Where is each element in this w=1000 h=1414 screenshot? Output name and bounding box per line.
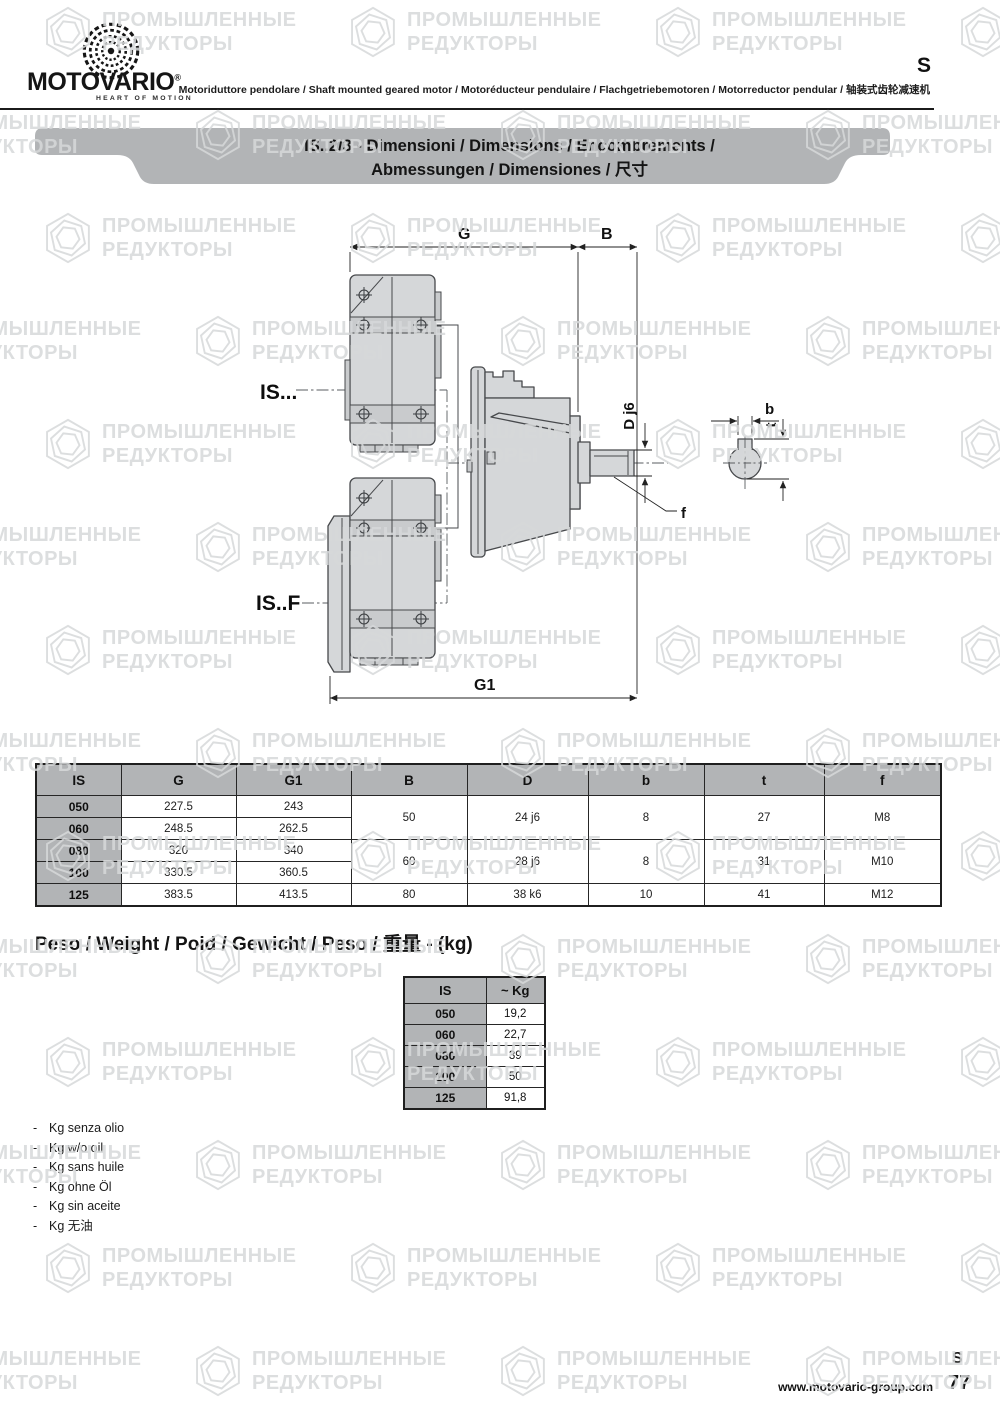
watermark: ПРОМЫШЛЕННЫЕРЕДУКТОРЫ bbox=[650, 4, 907, 60]
col-header-B: B bbox=[351, 764, 467, 796]
size-cell: 125 bbox=[404, 1088, 486, 1110]
watermark: ПРОМЫШЛЕННЫЕРЕДУКТОРЫ bbox=[800, 931, 1000, 987]
watermark: ПРОМЫШЛЕННЫЕРЕДУКТОРЫ bbox=[955, 4, 1000, 60]
dim-label-B: B bbox=[601, 226, 613, 243]
col-header-D: D bbox=[467, 764, 588, 796]
table-row: 125 383.5 413.5 80 38 k6 10 41 M12 bbox=[36, 884, 941, 907]
note-text: Kg 无油 bbox=[49, 1217, 93, 1237]
value-cell: 8 bbox=[588, 840, 704, 884]
title-banner: IS..2/3 - Dimensioni / Dimensions / Enco… bbox=[35, 128, 890, 188]
size-cell: 100 bbox=[404, 1067, 486, 1088]
size-cell: 125 bbox=[36, 884, 121, 907]
value-cell: 38 k6 bbox=[467, 884, 588, 907]
gearbox-top-view bbox=[345, 275, 441, 452]
table-row: 100 50 bbox=[404, 1067, 545, 1088]
value-cell: 22,7 bbox=[486, 1025, 545, 1046]
note-text: Kg senza olio bbox=[49, 1119, 124, 1139]
value-cell: 360.5 bbox=[236, 862, 351, 884]
col-header-b: b bbox=[588, 764, 704, 796]
watermark: ПРОМЫШЛЕННЫЕРЕДУКТОРЫ bbox=[345, 4, 602, 60]
dim-label-f: f bbox=[681, 505, 687, 522]
footer-page-number: 77 bbox=[948, 1372, 970, 1395]
dim-label-G: G bbox=[458, 226, 470, 243]
value-cell: 91,8 bbox=[486, 1088, 545, 1110]
note-text: Kg ohne Öl bbox=[49, 1178, 112, 1198]
watermark: ПРОМЫШЛЕННЫЕРЕДУКТОРЫ bbox=[0, 519, 142, 575]
note-bullet: - bbox=[33, 1197, 49, 1217]
dimensions-table: IS G G1 B D b t f 050 227.5 243 50 24 j6… bbox=[35, 763, 942, 907]
note-item: -Kg sans huile bbox=[33, 1158, 124, 1178]
value-cell: 80 bbox=[351, 884, 467, 907]
size-cell: 080 bbox=[404, 1046, 486, 1067]
watermark: ПРОМЫШЛЕННЫЕРЕДУКТОРЫ bbox=[955, 828, 1000, 884]
watermark: ПРОМЫШЛЕННЫЕРЕДУКТОРЫ bbox=[955, 416, 1000, 472]
logo-wordmark: MOTOVARIO® bbox=[27, 68, 181, 97]
value-cell: 31 bbox=[704, 840, 824, 884]
page-title: IS..2/3 - Dimensioni / Dimensions / Enco… bbox=[304, 134, 715, 182]
section-letter: S bbox=[917, 54, 931, 78]
watermark: ПРОМЫШЛЕННЫЕРЕДУКТОРЫ bbox=[800, 1137, 1000, 1193]
col-header-IS: IS bbox=[404, 977, 486, 1004]
value-cell: 248.5 bbox=[121, 818, 236, 840]
note-item: -Kg w/o oil bbox=[33, 1139, 124, 1159]
col-header-G1: G1 bbox=[236, 764, 351, 796]
size-cell: 100 bbox=[36, 862, 121, 884]
watermark: ПРОМЫШЛЕННЫЕРЕДУКТОРЫ bbox=[955, 1240, 1000, 1296]
value-cell: 50 bbox=[486, 1067, 545, 1088]
value-cell: 41 bbox=[704, 884, 824, 907]
technical-drawing: IS... IS..F bbox=[240, 220, 920, 720]
weight-table: IS ~ Kg 050 19,2 060 22,7 080 39 100 50 … bbox=[403, 976, 546, 1110]
value-cell: 262.5 bbox=[236, 818, 351, 840]
note-bullet: - bbox=[33, 1178, 49, 1198]
note-item: -Kg ohne Öl bbox=[33, 1178, 124, 1198]
is-f-version-label: IS..F bbox=[256, 592, 301, 615]
value-cell: 60 bbox=[351, 840, 467, 884]
dim-label-b: b bbox=[765, 401, 774, 418]
note-item: -Kg sin aceite bbox=[33, 1197, 124, 1217]
catalog-page: MOTOVARIO® HEART OF MOTION Motoriduttore… bbox=[0, 0, 1000, 1414]
value-cell: 50 bbox=[351, 796, 467, 840]
is-version-label: IS... bbox=[260, 381, 297, 404]
weight-section-heading: Peso / Weight / Poid / Gewicht / Peso / … bbox=[35, 929, 473, 956]
page-subtitle: Motoriduttore pendolare / Shaft mounted … bbox=[179, 82, 930, 97]
table-header-row: IS G G1 B D b t f bbox=[36, 764, 941, 796]
value-cell: 243 bbox=[236, 796, 351, 818]
value-cell: 10 bbox=[588, 884, 704, 907]
col-header-kg: ~ Kg bbox=[486, 977, 545, 1004]
value-cell: M8 bbox=[824, 796, 941, 840]
dim-label-t: t bbox=[763, 423, 780, 428]
note-item: -Kg 无油 bbox=[33, 1217, 124, 1237]
table-row: 080 39 bbox=[404, 1046, 545, 1067]
value-cell: 39 bbox=[486, 1046, 545, 1067]
table-row: 050 227.5 243 50 24 j6 8 27 M8 bbox=[36, 796, 941, 818]
value-cell: 383.5 bbox=[121, 884, 236, 907]
table-row: 080 320 340 60 28 j6 8 31 M10 bbox=[36, 840, 941, 862]
size-cell: 050 bbox=[36, 796, 121, 818]
gearbox-flange-top-view bbox=[328, 478, 441, 672]
watermark: ПРОМЫШЛЕННЫЕРЕДУКТОРЫ bbox=[40, 1240, 297, 1296]
table-row: 060 22,7 bbox=[404, 1025, 545, 1046]
shaft-cross-section bbox=[723, 436, 767, 492]
watermark: ПРОМЫШЛЕННЫЕРЕДУКТОРЫ bbox=[495, 1137, 752, 1193]
size-cell: 050 bbox=[404, 1004, 486, 1025]
note-text: Kg sin aceite bbox=[49, 1197, 121, 1217]
col-header-f: f bbox=[824, 764, 941, 796]
watermark: ПРОМЫШЛЕННЫЕРЕДУКТОРЫ bbox=[955, 622, 1000, 678]
col-header-t: t bbox=[704, 764, 824, 796]
note-bullet: - bbox=[33, 1139, 49, 1159]
watermark: ПРОМЫШЛЕННЫЕРЕДУКТОРЫ bbox=[0, 313, 142, 369]
value-cell: M12 bbox=[824, 884, 941, 907]
footer-website-link[interactable]: www.motovario-group.com bbox=[778, 1380, 933, 1394]
dim-label-G1: G1 bbox=[474, 677, 495, 694]
note-bullet: - bbox=[33, 1217, 49, 1237]
value-cell: 330.5 bbox=[121, 862, 236, 884]
size-cell: 060 bbox=[36, 818, 121, 840]
watermark: ПРОМЫШЛЕННЫЕРЕДУКТОРЫ bbox=[955, 1034, 1000, 1090]
watermark: ПРОМЫШЛЕННЫЕРЕДУКТОРЫ bbox=[345, 1240, 602, 1296]
watermark: ПРОМЫШЛЕННЫЕРЕДУКТОРЫ bbox=[40, 1034, 297, 1090]
value-cell: 320 bbox=[121, 840, 236, 862]
value-cell: 340 bbox=[236, 840, 351, 862]
value-cell: 8 bbox=[588, 796, 704, 840]
note-bullet: - bbox=[33, 1158, 49, 1178]
value-cell: 19,2 bbox=[486, 1004, 545, 1025]
col-header-G: G bbox=[121, 764, 236, 796]
value-cell: 27 bbox=[704, 796, 824, 840]
note-item: -Kg senza olio bbox=[33, 1119, 124, 1139]
value-cell: 413.5 bbox=[236, 884, 351, 907]
watermark: ПРОМЫШЛЕННЫЕРЕДУКТОРЫ bbox=[650, 1034, 907, 1090]
table-row: 050 19,2 bbox=[404, 1004, 545, 1025]
weight-notes-list: -Kg senza olio -Kg w/o oil -Kg sans huil… bbox=[33, 1119, 124, 1236]
footer-section-letter: S bbox=[952, 1350, 963, 1368]
dim-label-D-j6: D j6 bbox=[621, 402, 638, 430]
size-cell: 060 bbox=[404, 1025, 486, 1046]
table-header-row: IS ~ Kg bbox=[404, 977, 545, 1004]
size-cell: 080 bbox=[36, 840, 121, 862]
watermark: ПРОМЫШЛЕННЫЕРЕДУКТОРЫ bbox=[0, 1343, 142, 1399]
value-cell: 227.5 bbox=[121, 796, 236, 818]
note-text: Kg w/o oil bbox=[49, 1139, 103, 1159]
watermark: ПРОМЫШЛЕННЫЕРЕДУКТОРЫ bbox=[495, 1343, 752, 1399]
note-text: Kg sans huile bbox=[49, 1158, 124, 1178]
watermark: ПРОМЫШЛЕННЫЕРЕДУКТОРЫ bbox=[955, 210, 1000, 266]
value-cell: 28 j6 bbox=[467, 840, 588, 884]
header-divider bbox=[0, 108, 934, 110]
watermark: ПРОМЫШЛЕННЫЕРЕДУКТОРЫ bbox=[190, 1137, 447, 1193]
watermark: ПРОМЫШЛЕННЫЕРЕДУКТОРЫ bbox=[650, 1240, 907, 1296]
col-header-IS: IS bbox=[36, 764, 121, 796]
note-bullet: - bbox=[33, 1119, 49, 1139]
watermark: ПРОМЫШЛЕННЫЕРЕДУКТОРЫ bbox=[190, 1343, 447, 1399]
value-cell: 24 j6 bbox=[467, 796, 588, 840]
gearbox-side-view bbox=[467, 367, 634, 557]
value-cell: M10 bbox=[824, 840, 941, 884]
table-row: 125 91,8 bbox=[404, 1088, 545, 1110]
